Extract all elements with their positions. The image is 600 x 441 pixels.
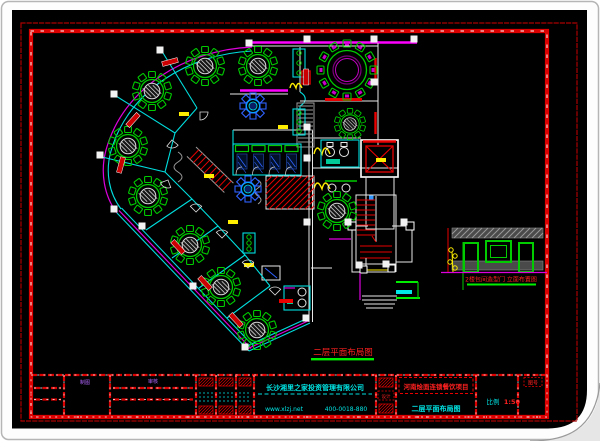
column [345, 219, 352, 226]
column [371, 79, 378, 86]
yellow-mark [278, 125, 288, 129]
stamp-label: 设计 [382, 393, 391, 400]
yellow-mark [376, 158, 386, 162]
company-name: 长沙湘里之家投资管理有限公司 [266, 383, 364, 392]
yellow-mark [179, 112, 189, 116]
yellow-mark [228, 220, 238, 224]
column [304, 155, 311, 162]
column [356, 262, 363, 269]
column [111, 91, 118, 98]
column [246, 40, 253, 47]
column [383, 261, 390, 268]
door-opening [304, 69, 309, 85]
column [97, 152, 104, 159]
drawing-title: 二层平面布局图 [412, 404, 461, 413]
column [111, 206, 118, 213]
yellow-mark [204, 174, 214, 178]
plan-caption: 二层平面布局图 [311, 347, 374, 360]
column [304, 219, 311, 226]
column [371, 36, 378, 43]
elevation-caption: 2楼包间造型门 立面布置图 [465, 276, 537, 284]
column [139, 223, 146, 230]
company-phone: 400-0018-880 [325, 406, 368, 413]
project-name: 河南烩面连锁餐饮项目 [404, 382, 469, 391]
company-website: www.xlzj.net [265, 406, 304, 413]
column [401, 219, 408, 226]
scale-label: 比例 [487, 397, 500, 406]
scale-value: 1:50 [504, 398, 521, 406]
column [411, 36, 418, 43]
sheet-no-label: 图号 [528, 381, 538, 387]
draft-label: 制图 [80, 379, 90, 386]
column [157, 47, 164, 54]
column [303, 315, 310, 322]
column [304, 124, 311, 131]
column [242, 344, 249, 351]
review-label: 审核 [148, 378, 158, 385]
cad-sheet: 2楼包间造型门 立面布置图 二层平面布局图 制图 审核 长沙湘里之家投资管理有限… [0, 0, 600, 441]
svg-text:二层平面布局图: 二层平面布局图 [313, 347, 373, 358]
column [304, 36, 311, 43]
drawing-sheet-page: 2楼包间造型门 立面布置图 二层平面布局图 制图 审核 长沙湘里之家投资管理有限… [0, 0, 600, 441]
column [190, 283, 197, 290]
